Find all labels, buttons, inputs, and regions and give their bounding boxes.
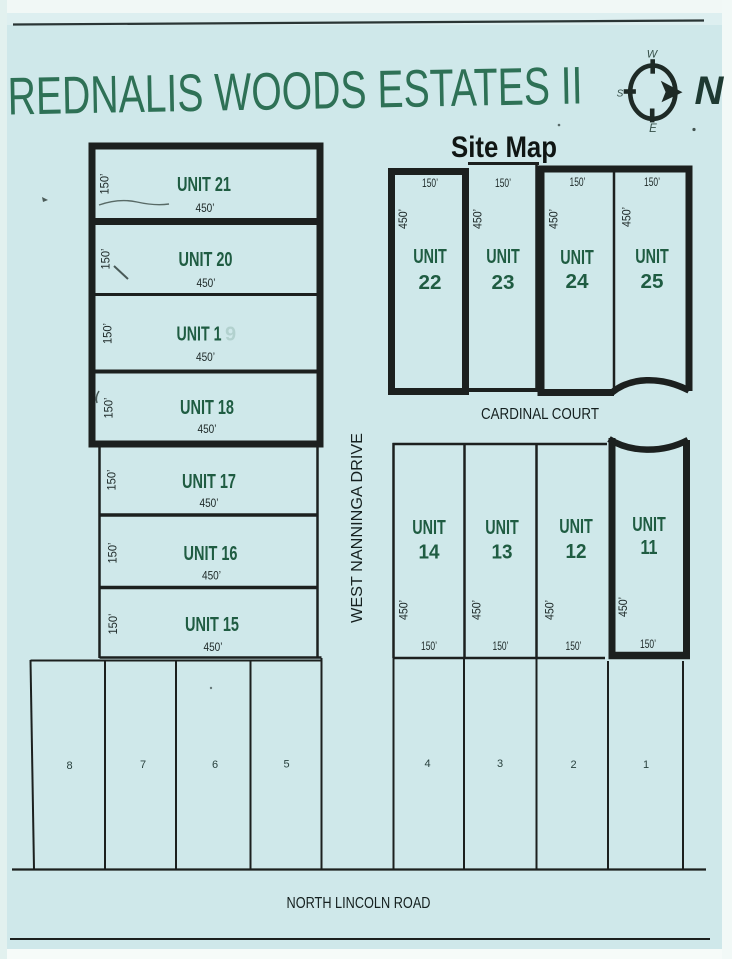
svg-text:150’: 150’ xyxy=(100,323,114,344)
svg-text:150’: 150’ xyxy=(640,637,656,651)
svg-text:UNIT 1: UNIT 1 xyxy=(177,324,222,346)
svg-text:UNIT: UNIT xyxy=(486,246,520,268)
svg-text:450’: 450’ xyxy=(396,209,410,229)
svg-text:NORTH LINCOLN ROAD: NORTH LINCOLN ROAD xyxy=(287,895,431,912)
svg-text:450’: 450’ xyxy=(471,209,485,229)
svg-text:UNIT 20: UNIT 20 xyxy=(179,249,233,271)
svg-text:450’: 450’ xyxy=(196,350,215,364)
svg-text:8: 8 xyxy=(66,760,72,772)
svg-text:UNIT 16: UNIT 16 xyxy=(184,543,238,565)
svg-text:150’: 150’ xyxy=(644,175,660,189)
svg-text:150’: 150’ xyxy=(493,639,509,653)
svg-text:150’: 150’ xyxy=(422,176,438,190)
svg-text:150’: 150’ xyxy=(105,543,119,564)
svg-text:450’: 450’ xyxy=(397,600,411,620)
svg-text:S: S xyxy=(617,89,624,100)
svg-text:13: 13 xyxy=(492,542,513,564)
svg-text:7: 7 xyxy=(140,759,146,771)
svg-text:N: N xyxy=(695,69,725,113)
svg-text:23: 23 xyxy=(492,272,515,294)
svg-text:E: E xyxy=(649,123,657,135)
svg-text:UNIT 18: UNIT 18 xyxy=(180,397,234,419)
svg-text:450’: 450’ xyxy=(198,422,217,436)
svg-text:9: 9 xyxy=(225,324,236,346)
svg-text:450’: 450’ xyxy=(200,496,219,510)
svg-text:150’: 150’ xyxy=(97,174,111,195)
svg-text:UNIT 17: UNIT 17 xyxy=(182,471,236,493)
svg-text:450’: 450’ xyxy=(196,201,215,215)
svg-text:3: 3 xyxy=(497,758,503,770)
svg-text:150’: 150’ xyxy=(104,470,118,491)
svg-text:150’: 150’ xyxy=(495,176,511,190)
svg-text:450’: 450’ xyxy=(204,640,223,654)
svg-text:REDNALIS WOODS ESTATES II: REDNALIS WOODS ESTATES II xyxy=(7,56,583,126)
svg-text:UNIT: UNIT xyxy=(485,517,519,539)
svg-text:UNIT: UNIT xyxy=(413,246,447,268)
svg-text:4: 4 xyxy=(424,758,430,770)
svg-text:450’: 450’ xyxy=(202,569,221,583)
svg-text:450’: 450’ xyxy=(197,276,216,290)
svg-text:5: 5 xyxy=(283,759,289,771)
svg-text:450’: 450’ xyxy=(547,209,561,229)
svg-text:2: 2 xyxy=(570,759,576,771)
svg-text:150’: 150’ xyxy=(570,175,586,189)
svg-text:Site Map: Site Map xyxy=(451,131,557,164)
svg-text:6: 6 xyxy=(212,759,218,771)
svg-text:150’: 150’ xyxy=(101,398,115,419)
svg-text:UNIT: UNIT xyxy=(412,517,446,539)
svg-text:1: 1 xyxy=(643,759,649,771)
svg-text:UNIT: UNIT xyxy=(559,516,593,538)
svg-text:450’: 450’ xyxy=(616,597,630,617)
svg-text:11: 11 xyxy=(641,537,658,559)
svg-text:150’: 150’ xyxy=(98,249,112,270)
svg-text:150’: 150’ xyxy=(106,614,120,635)
svg-text:25: 25 xyxy=(641,271,664,293)
svg-text:150’: 150’ xyxy=(421,639,437,653)
svg-text:450’: 450’ xyxy=(470,600,484,620)
svg-text:UNIT: UNIT xyxy=(560,247,594,269)
svg-text:CARDINAL COURT: CARDINAL COURT xyxy=(481,406,599,423)
svg-text:22: 22 xyxy=(419,272,442,294)
svg-text:12: 12 xyxy=(566,541,587,563)
svg-text:UNIT: UNIT xyxy=(632,514,666,536)
svg-text:UNIT 21: UNIT 21 xyxy=(177,174,231,196)
svg-text:UNIT: UNIT xyxy=(635,246,669,268)
svg-text:150’: 150’ xyxy=(566,639,582,653)
svg-text:450’: 450’ xyxy=(543,600,557,620)
svg-text:W: W xyxy=(647,49,659,61)
svg-text:14: 14 xyxy=(419,542,441,564)
svg-text:450’: 450’ xyxy=(620,207,634,227)
svg-text:UNIT 15: UNIT 15 xyxy=(185,614,239,636)
svg-text:24: 24 xyxy=(566,271,590,293)
svg-text:WEST NANNINGA DRIVE: WEST NANNINGA DRIVE xyxy=(349,433,366,623)
